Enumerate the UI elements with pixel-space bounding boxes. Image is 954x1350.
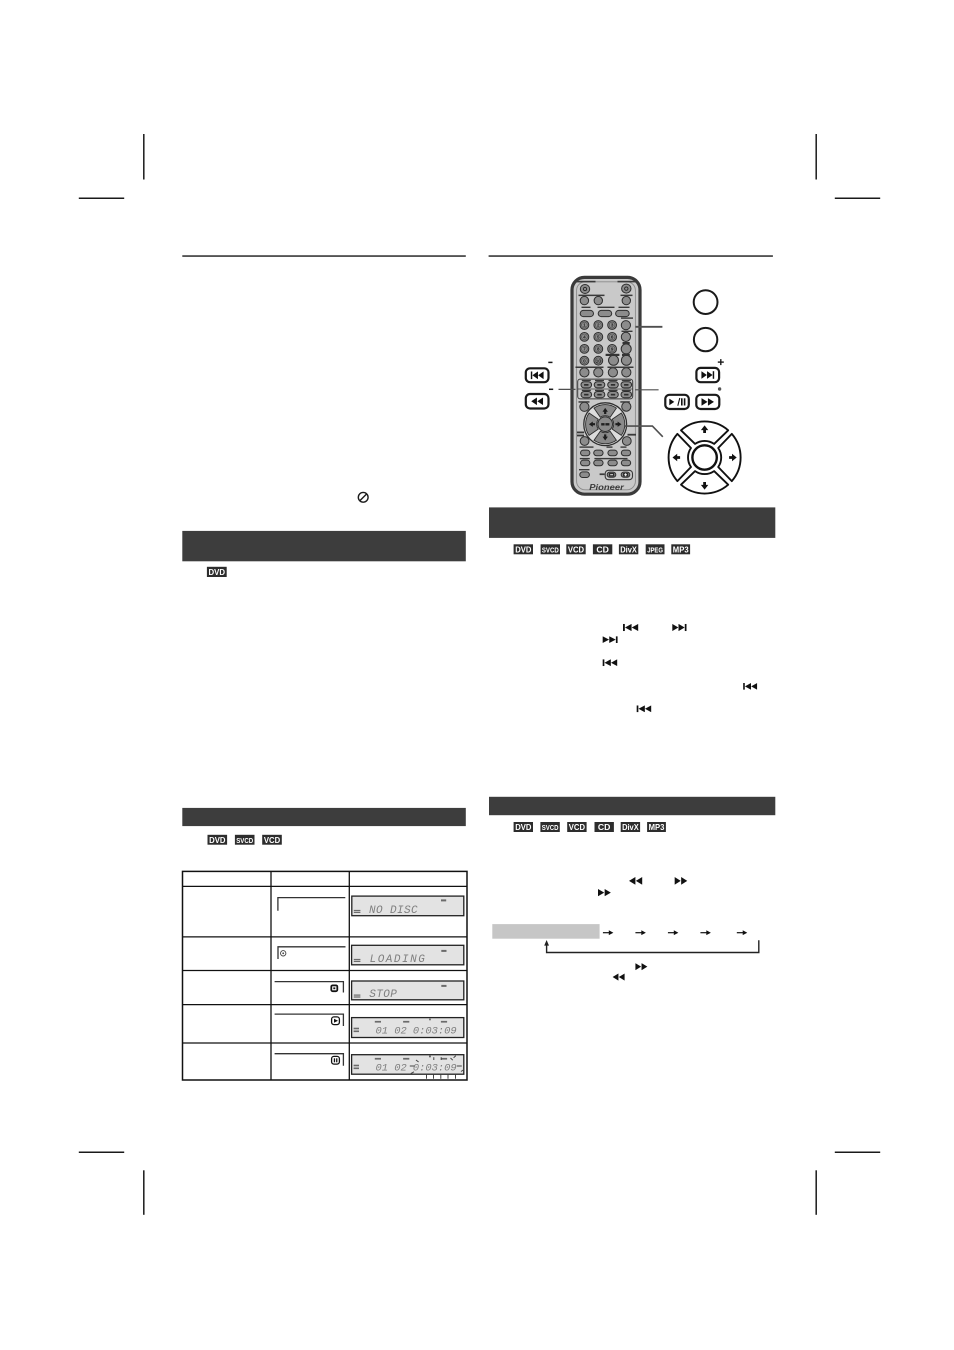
- svg-text:MP3: MP3: [649, 822, 665, 832]
- svg-text:SVCD: SVCD: [542, 823, 559, 832]
- svg-text:VCD: VCD: [264, 835, 280, 845]
- svg-text:JPEG: JPEG: [647, 546, 663, 555]
- svg-text:NO DISC: NO DISC: [369, 905, 418, 917]
- svg-text:Pioneer: Pioneer: [589, 483, 625, 492]
- svg-text:10: 10: [596, 358, 602, 363]
- svg-text:DivX: DivX: [622, 823, 639, 832]
- svg-text:DVD: DVD: [515, 545, 531, 555]
- svg-text:DVD: DVD: [209, 835, 225, 845]
- svg-text:6: 6: [611, 335, 614, 340]
- svg-text:3: 3: [611, 323, 614, 328]
- svg-text:VCD: VCD: [569, 822, 585, 832]
- svg-text:01 02 0:03:09: 01 02 0:03:09: [376, 1063, 457, 1075]
- svg-text:SVCD: SVCD: [542, 546, 559, 555]
- svg-text:8: 8: [597, 347, 600, 352]
- svg-text:01 02 0:03:09: 01 02 0:03:09: [376, 1026, 457, 1038]
- svg-text:MP3: MP3: [673, 545, 689, 555]
- svg-text:1: 1: [583, 323, 586, 328]
- svg-text:SVCD: SVCD: [236, 836, 253, 845]
- svg-text:9: 9: [611, 347, 614, 352]
- svg-text:DivX: DivX: [620, 546, 637, 555]
- svg-text:7: 7: [583, 347, 586, 352]
- svg-text:LOADING: LOADING: [370, 954, 427, 966]
- svg-text:4: 4: [583, 335, 586, 340]
- svg-text:DVD: DVD: [209, 567, 226, 577]
- svg-text:0: 0: [583, 358, 586, 363]
- svg-text:VCD: VCD: [568, 545, 584, 555]
- svg-text:CD: CD: [596, 545, 609, 555]
- svg-text:5: 5: [597, 335, 600, 340]
- svg-text:DVD: DVD: [515, 822, 531, 832]
- svg-text:STOP: STOP: [369, 989, 397, 1001]
- svg-text:CD: CD: [598, 822, 611, 832]
- svg-text:2: 2: [597, 323, 600, 328]
